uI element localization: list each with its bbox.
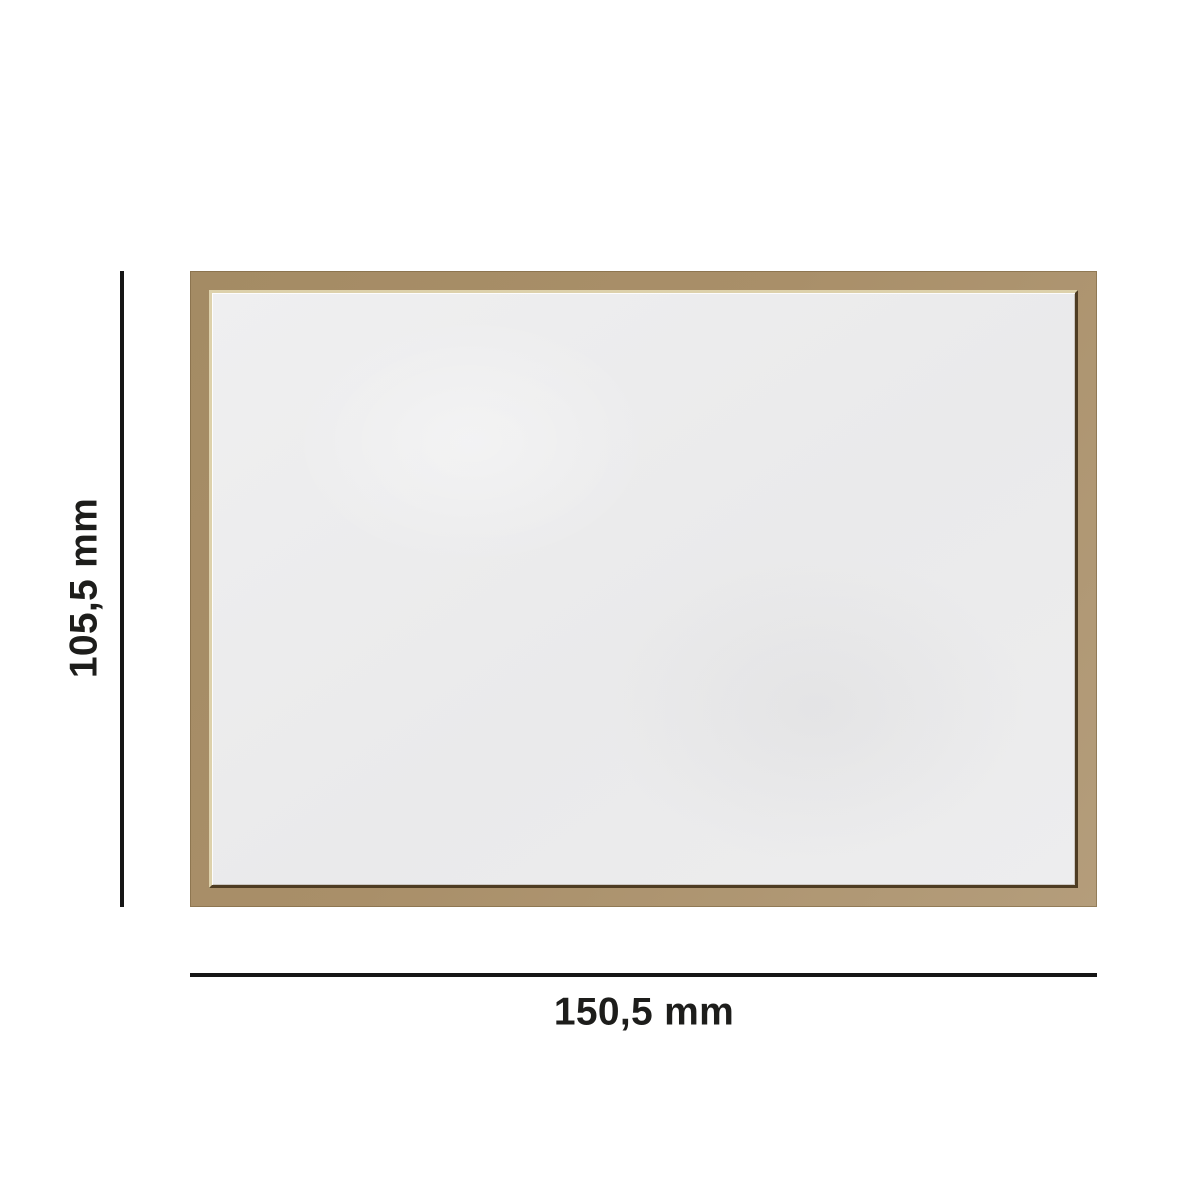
framed-board <box>190 271 1097 907</box>
dimension-diagram: 105,5 mm 150,5 mm <box>0 0 1200 1200</box>
board-surface <box>212 293 1075 885</box>
height-dimension-line <box>120 271 124 907</box>
height-dimension-label: 105,5 mm <box>65 498 104 678</box>
width-dimension-label: 150,5 mm <box>554 993 734 1032</box>
width-dimension-line <box>190 973 1097 977</box>
